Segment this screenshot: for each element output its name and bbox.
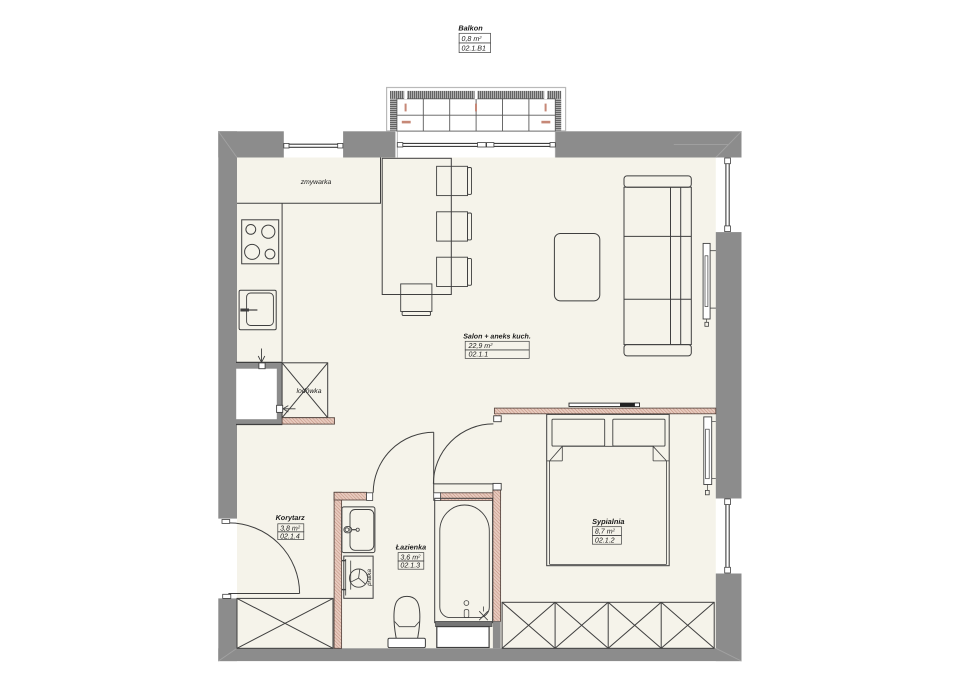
svg-text:02.1.3: 02.1.3 — [400, 562, 420, 570]
svg-text:3,6 m2: 3,6 m2 — [400, 553, 421, 561]
svg-text:0,8 m2: 0,8 m2 — [462, 35, 483, 43]
svg-text:02.1.2: 02.1.2 — [595, 536, 615, 544]
svg-text:Balkon: Balkon — [458, 24, 483, 33]
svg-text:02.1.B1: 02.1.B1 — [462, 45, 487, 53]
svg-text:zmywarka: zmywarka — [300, 179, 332, 186]
svg-text:02.1.4: 02.1.4 — [280, 532, 300, 540]
svg-text:lodówka: lodówka — [297, 388, 322, 395]
svg-text:Łazienka: Łazienka — [395, 543, 426, 552]
svg-text:8,7 m2: 8,7 m2 — [595, 528, 616, 536]
svg-text:pralka: pralka — [366, 569, 373, 587]
svg-text:Salon + aneks kuch.: Salon + aneks kuch. — [463, 333, 531, 341]
svg-text:Korytarz: Korytarz — [276, 513, 306, 522]
svg-text:22,9 m2: 22,9 m2 — [468, 342, 494, 350]
svg-text:3,8 m2: 3,8 m2 — [280, 524, 301, 532]
svg-text:Sypialnia: Sypialnia — [592, 517, 624, 526]
svg-text:02.1.1: 02.1.1 — [469, 351, 489, 359]
